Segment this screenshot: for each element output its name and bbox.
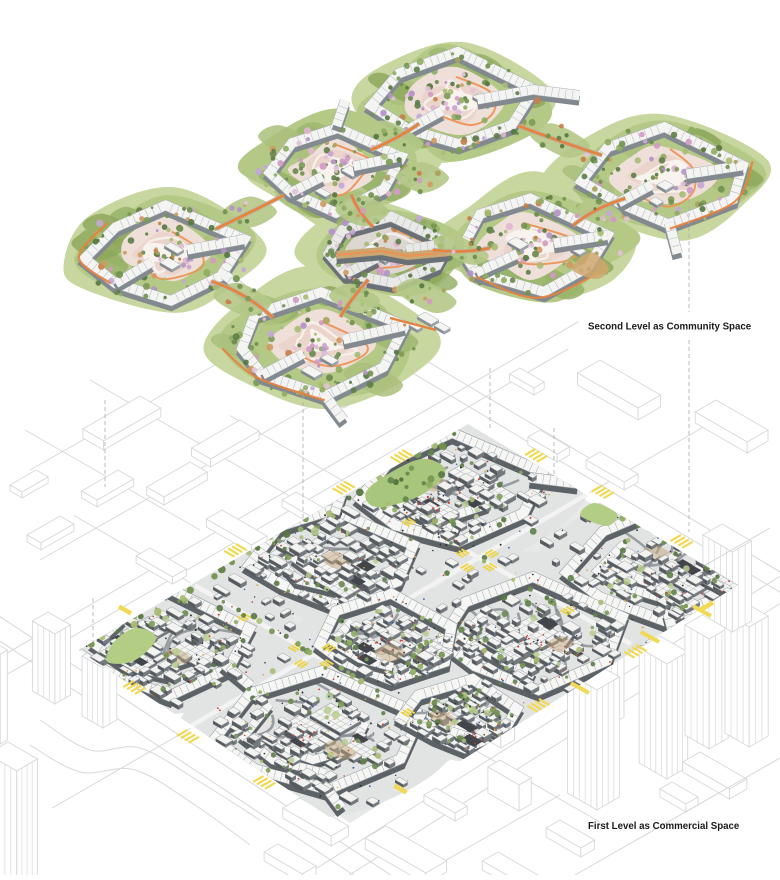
svg-text:Second Level as Community Spac: Second Level as Community Space (588, 322, 752, 333)
svg-text:First Level as Commercial Spac: First Level as Commercial Space (588, 821, 740, 832)
